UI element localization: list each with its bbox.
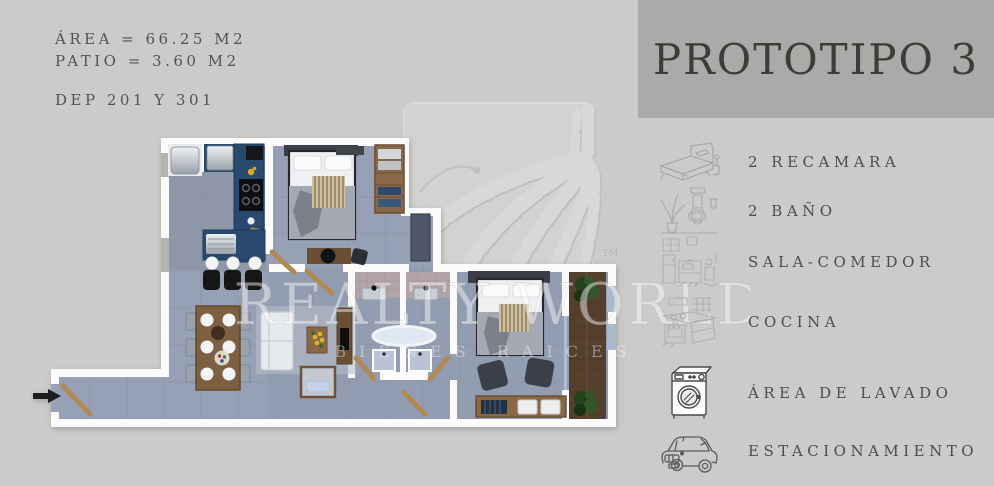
title-banner: PROTOTIPO 3 bbox=[638, 0, 994, 118]
stove-sketch-icon bbox=[652, 294, 726, 350]
page-title: PROTOTIPO 3 bbox=[653, 35, 979, 84]
feature-label: ESTACIONAMIENTO bbox=[748, 442, 978, 460]
feature-label: COCINA bbox=[748, 313, 840, 331]
watermark-tm: TM bbox=[602, 249, 619, 259]
feature-row-area-de-lavado: ÁREA DE LAVADO bbox=[652, 364, 952, 422]
wardrobe bbox=[375, 145, 404, 213]
patio-text: PATIO = 3.60 M2 bbox=[55, 50, 246, 72]
washing-machine-icon bbox=[652, 364, 726, 422]
small-appliance bbox=[207, 146, 233, 170]
stove bbox=[239, 179, 263, 211]
centerpiece bbox=[211, 326, 225, 340]
range-hood bbox=[246, 146, 263, 160]
fridge bbox=[171, 147, 199, 174]
wall-tv bbox=[336, 146, 364, 155]
floor-plan: TM bbox=[30, 100, 750, 446]
desk-chair bbox=[321, 249, 336, 264]
kitchenette-sketch-icon bbox=[652, 235, 726, 289]
feature-label: 2 RECAMARA bbox=[748, 153, 900, 171]
feature-row-recamara: 2 RECAMARA bbox=[652, 139, 900, 185]
feature-row-estacionamiento: ESTACIONAMIENTO bbox=[652, 429, 978, 473]
prototype-flyer: { "info": { "area": "ÁREA = 66.25 M2", "… bbox=[0, 0, 994, 486]
area-text: ÁREA = 66.25 M2 bbox=[55, 28, 246, 50]
feature-label: ÁREA DE LAVADO bbox=[748, 384, 952, 402]
bathroom-sketch-icon bbox=[652, 186, 726, 236]
feature-row-sala-comedor: SALA-COMEDOR bbox=[652, 235, 935, 289]
feature-label: 2 BAÑO bbox=[748, 202, 837, 220]
hall-mirror-panel bbox=[411, 214, 430, 261]
accent-chair bbox=[524, 357, 555, 388]
bed-sketch-icon bbox=[652, 139, 726, 185]
feature-row-cocina: COCINA bbox=[652, 294, 840, 350]
unit-number-text: DEP 201 Y 301 bbox=[55, 89, 246, 111]
car-icon bbox=[652, 429, 726, 473]
svg-text:BIENES RAICES: BIENES RAICES bbox=[334, 342, 639, 361]
daybed-bench bbox=[301, 367, 335, 397]
feature-label: SALA-COMEDOR bbox=[748, 253, 935, 271]
feature-row-bano: 2 BAÑO bbox=[652, 186, 837, 236]
unit-info: ÁREA = 66.25 M2 PATIO = 3.60 M2 DEP 201 … bbox=[55, 28, 246, 111]
media-console bbox=[476, 396, 566, 417]
